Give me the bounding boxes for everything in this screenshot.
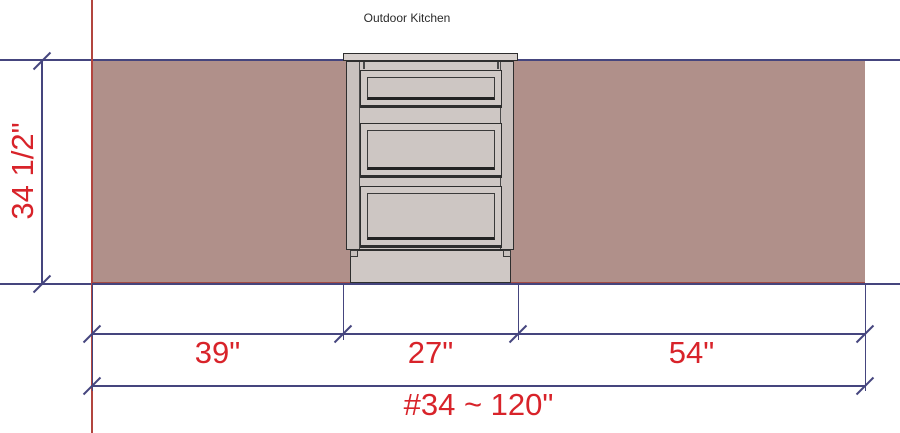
cabinet-body [346,61,514,250]
drawer-front-2[interactable] [360,123,502,178]
cabinet-toe-kick [350,250,511,283]
segment-dimension-label-1[interactable]: 39" [92,337,343,368]
floor-line [0,283,900,285]
drawer-front-3[interactable] [360,186,502,248]
height-dimension-label[interactable]: 34 1/2" [3,91,41,251]
drawer-panel [367,130,495,170]
total-dimension-label[interactable]: #34 ~ 120" [92,389,865,420]
segment-dimension-label-2[interactable]: 27" [343,337,518,368]
drawer-front-1[interactable] [360,70,502,108]
cabinet[interactable] [343,53,518,283]
drawing-canvas: 34 1/2" 39" 27" 54" #34 ~ 120" Outdoor K… [0,0,900,433]
cabinet-top-notch-left [363,62,365,69]
cabinet-countertop [343,53,518,61]
cabinet-foot-left [350,250,358,257]
drawing-title: Outdoor Kitchen [307,11,507,25]
cabinet-foot-right [503,250,511,257]
cabinet-top-notch-right [497,62,499,69]
drawer-panel [367,193,495,240]
segment-dimension-label-3[interactable]: 54" [518,337,865,368]
drawer-panel [367,77,495,100]
cabinet-left-stile [347,62,360,249]
height-dimension-line [41,60,43,283]
